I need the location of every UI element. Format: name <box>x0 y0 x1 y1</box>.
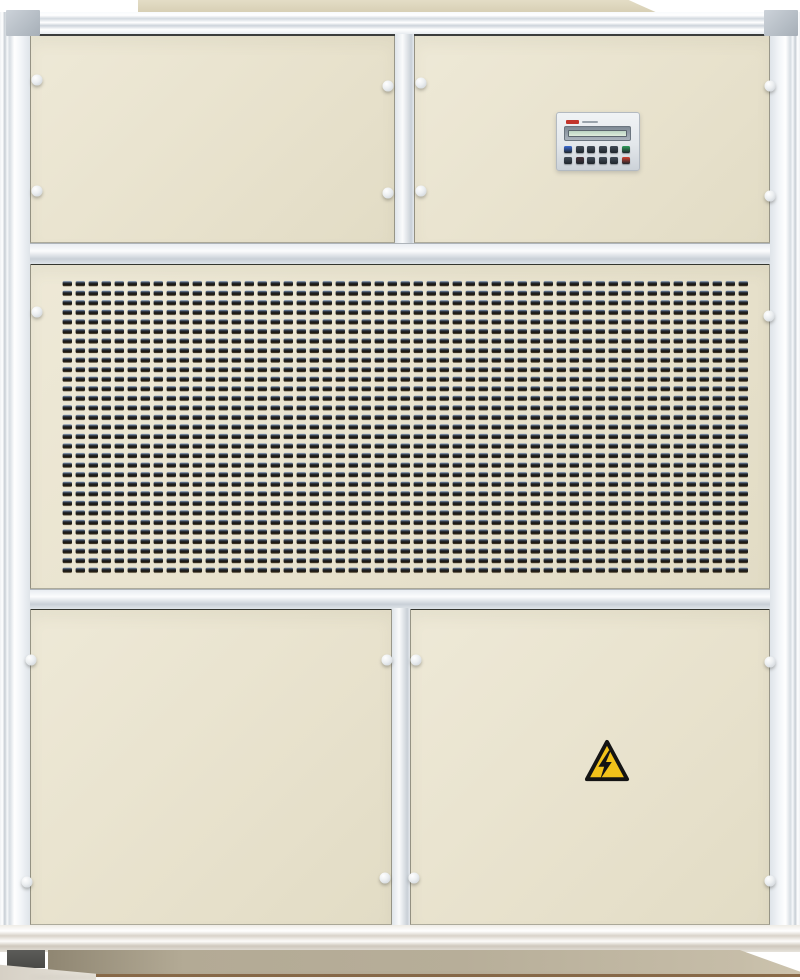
fastener-knob <box>416 78 427 89</box>
frame-mid-rail-lower <box>30 589 770 609</box>
fastener-knob <box>32 307 43 318</box>
controller-panel <box>556 112 640 171</box>
controller-key <box>599 157 607 164</box>
brand-logo-red <box>566 120 579 124</box>
frame-corner-top-left <box>6 10 40 36</box>
fastener-knob <box>764 311 775 322</box>
frame-top-rail <box>0 12 800 36</box>
controller-button-row-2 <box>564 157 630 164</box>
controller-key <box>610 157 618 164</box>
controller-key <box>587 157 595 164</box>
fastener-knob <box>765 657 776 668</box>
controller-key <box>564 146 572 153</box>
frame-corner-top-right <box>764 10 798 36</box>
door-bottom-left <box>30 608 392 925</box>
base-leg <box>7 950 45 968</box>
fastener-knob <box>765 191 776 202</box>
fastener-knob <box>765 81 776 92</box>
controller-key <box>576 146 584 153</box>
fastener-knob <box>32 75 43 86</box>
frame-mullion-bottom <box>392 608 410 925</box>
warning-triangle <box>587 742 627 779</box>
frame-right-rail <box>770 12 800 952</box>
controller-key <box>587 146 595 153</box>
brand-logo-text <box>582 121 598 123</box>
frame-left-rail <box>0 12 30 952</box>
fastener-knob <box>26 655 37 666</box>
fastener-knob <box>383 81 394 92</box>
controller-key <box>610 146 618 153</box>
base-plinth <box>48 950 800 977</box>
controller-button-row-1 <box>564 146 630 153</box>
fastener-knob <box>409 873 420 884</box>
frame-mullion-top <box>395 34 414 243</box>
controller-key <box>599 146 607 153</box>
panel-top-left <box>30 34 395 243</box>
frame-mid-rail-upper <box>30 243 770 264</box>
fastener-knob <box>416 186 427 197</box>
controller-brand-mark <box>566 120 598 124</box>
lcd-bezel <box>564 126 631 141</box>
fastener-knob <box>765 876 776 887</box>
fastener-knob <box>32 186 43 197</box>
ventilation-grille <box>61 279 749 575</box>
panel-grille <box>30 263 770 589</box>
photo-canvas <box>0 0 800 980</box>
fastener-knob <box>383 188 394 199</box>
controller-key <box>564 157 572 164</box>
lcd-screen <box>568 130 627 137</box>
floor-shadow <box>30 975 790 980</box>
controller-key <box>622 157 630 164</box>
frame-bottom-rail <box>0 925 800 952</box>
high-voltage-warning-icon <box>584 736 630 786</box>
fastener-knob <box>22 877 33 888</box>
fastener-knob <box>382 655 393 666</box>
fastener-knob <box>411 655 422 666</box>
controller-key <box>622 146 630 153</box>
fastener-knob <box>380 873 391 884</box>
controller-key <box>576 157 584 164</box>
